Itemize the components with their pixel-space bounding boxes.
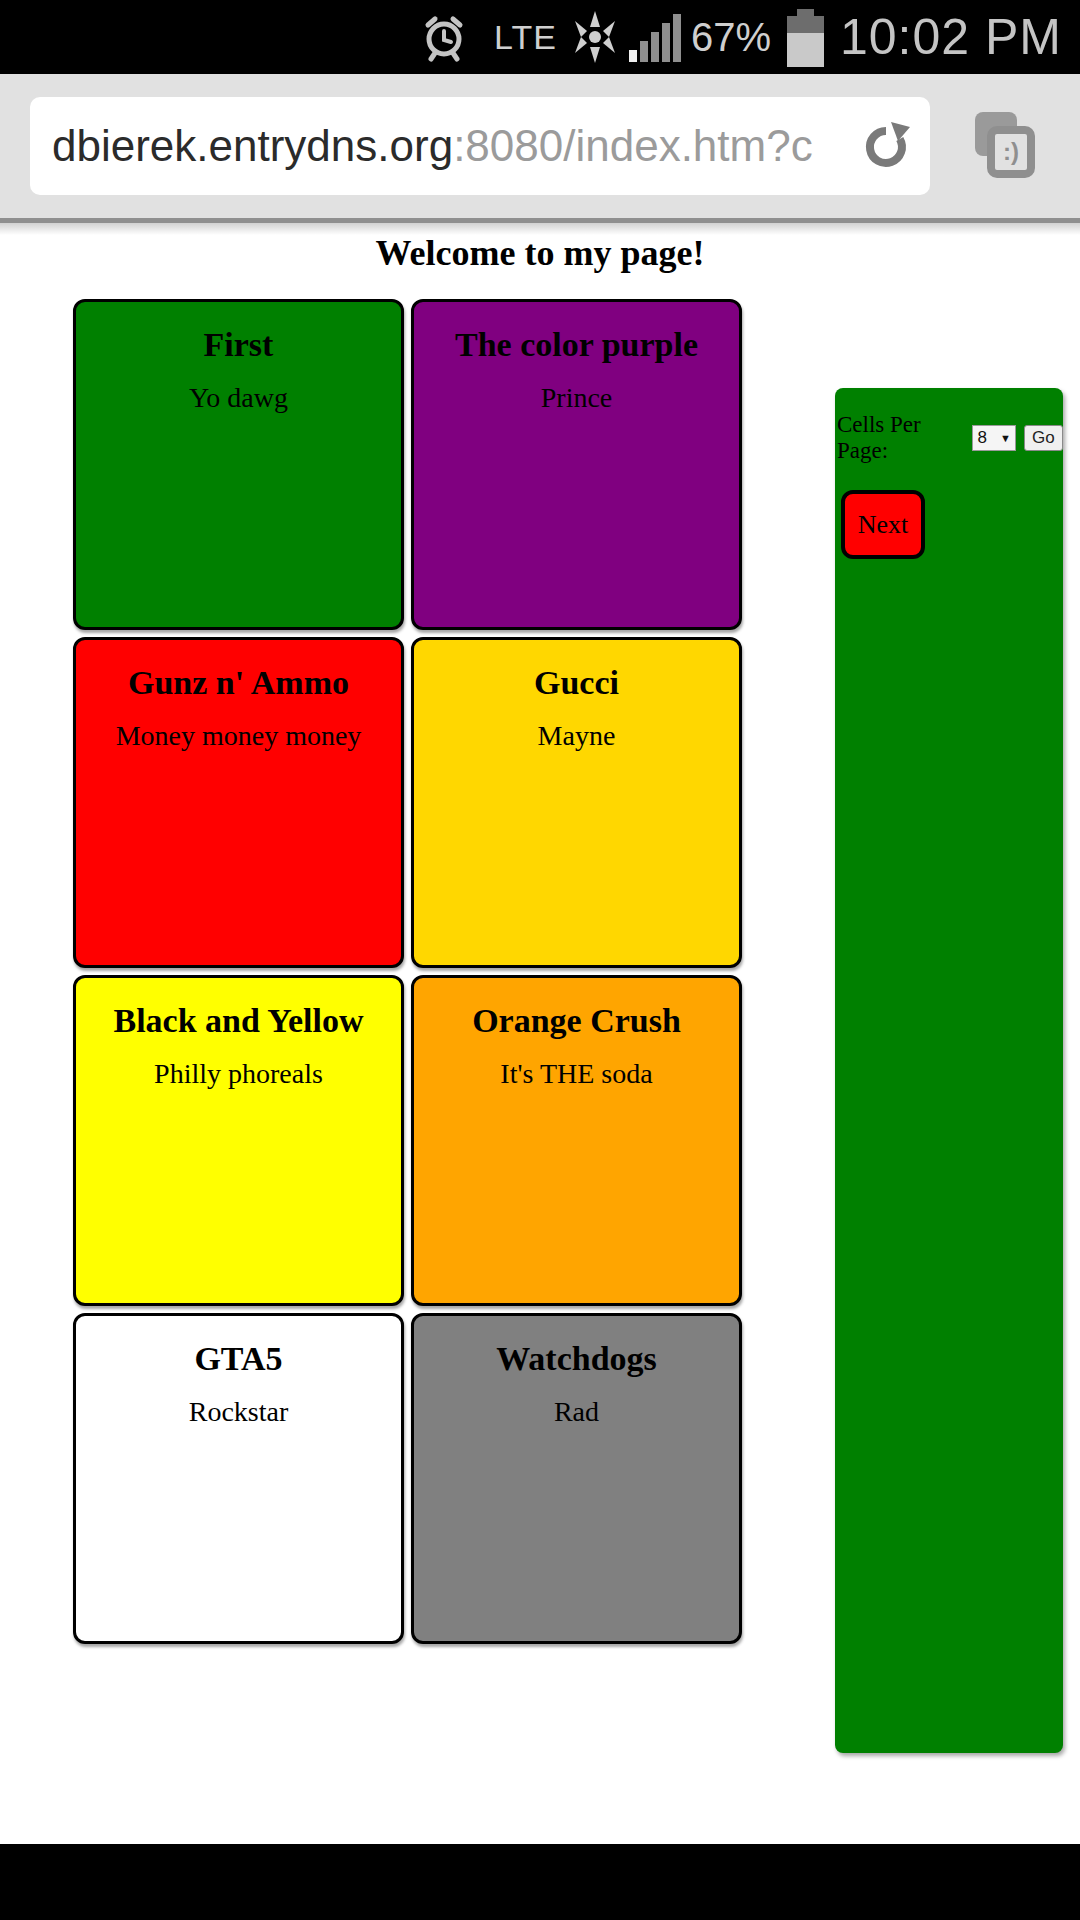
alarm-icon (420, 11, 468, 63)
signal-strength-icon (627, 10, 685, 64)
cell-title: Orange Crush (414, 1002, 739, 1040)
tabs-front-card: :) (987, 126, 1035, 178)
tabs-count-label: :) (1003, 138, 1019, 166)
cell-title: Watchdogs (414, 1340, 739, 1378)
go-button[interactable]: Go (1024, 425, 1063, 451)
cells-per-page-label: Cells Per Page: (837, 412, 967, 464)
cell-gta5: GTA5Rockstar (73, 1313, 404, 1644)
tabs-button[interactable]: :) (975, 112, 1041, 184)
cells-per-page-controls: Cells Per Page: 8 ▼ Go (837, 412, 1063, 464)
url-bar[interactable]: dbierek.entrydns.org:8080/index.htm?c (30, 97, 930, 195)
location-star-icon (567, 9, 623, 65)
next-button[interactable]: Next (841, 490, 925, 559)
cell-the-color-purple: The color purplePrince (411, 299, 742, 630)
cell-gucci: GucciMayne (411, 637, 742, 968)
cell-title: The color purple (414, 326, 739, 364)
cell-subtitle: Prince (414, 382, 739, 414)
cell-black-and-yellow: Black and YellowPhilly phoreals (73, 975, 404, 1306)
bottom-letterbox (0, 1844, 1080, 1920)
cells-per-page-select[interactable]: 8 ▼ (972, 425, 1015, 451)
cell-gunz-n-ammo: Gunz n' AmmoMoney money money (73, 637, 404, 968)
refresh-button[interactable] (858, 118, 914, 174)
cell-subtitle: Rad (414, 1396, 739, 1428)
cell-subtitle: It's THE soda (414, 1058, 739, 1090)
cell-title: Black and Yellow (76, 1002, 401, 1040)
cell-subtitle: Money money money (76, 720, 401, 752)
cell-subtitle: Rockstar (76, 1396, 401, 1428)
cell-title: GTA5 (76, 1340, 401, 1378)
cell-first: FirstYo dawg (73, 299, 404, 630)
cells-grid: FirstYo dawgThe color purplePrinceGunz n… (73, 299, 742, 1644)
chevron-down-icon: ▼ (1000, 432, 1011, 444)
url-path: :8080/index.htm?c (453, 121, 813, 171)
battery-percent-label: 67% (691, 15, 771, 60)
cell-subtitle: Mayne (414, 720, 739, 752)
cell-orange-crush: Orange CrushIt's THE soda (411, 975, 742, 1306)
url-host: dbierek.entrydns.org (52, 121, 453, 171)
cell-title: First (76, 326, 401, 364)
status-bar: LTE 67% 10:02 PM (0, 0, 1080, 74)
cell-subtitle: Yo dawg (76, 382, 401, 414)
cell-watchdogs: WatchdogsRad (411, 1313, 742, 1644)
browser-toolbar: dbierek.entrydns.org:8080/index.htm?c :) (0, 74, 1080, 223)
select-value: 8 (977, 428, 986, 448)
cell-subtitle: Philly phoreals (76, 1058, 401, 1090)
sidebar-panel: Cells Per Page: 8 ▼ Go Next (835, 388, 1063, 1753)
page-title: Welcome to my page! (0, 232, 1080, 274)
cell-title: Gunz n' Ammo (76, 664, 401, 702)
carrier-label: LTE (494, 18, 557, 57)
cell-title: Gucci (414, 664, 739, 702)
battery-icon (787, 7, 824, 67)
clock-label: 10:02 PM (840, 8, 1062, 66)
